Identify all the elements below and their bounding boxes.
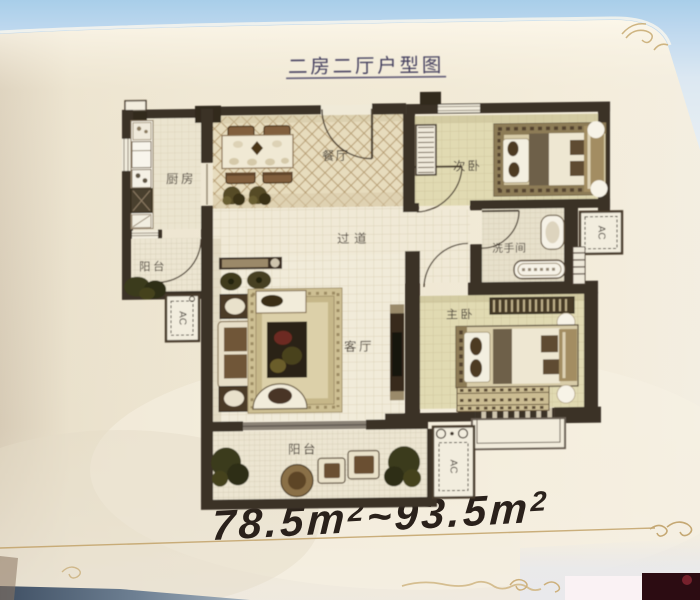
svg-text:AC: AC (448, 460, 459, 474)
svg-text:AC: AC (177, 311, 188, 325)
svg-text:AC: AC (596, 226, 607, 240)
